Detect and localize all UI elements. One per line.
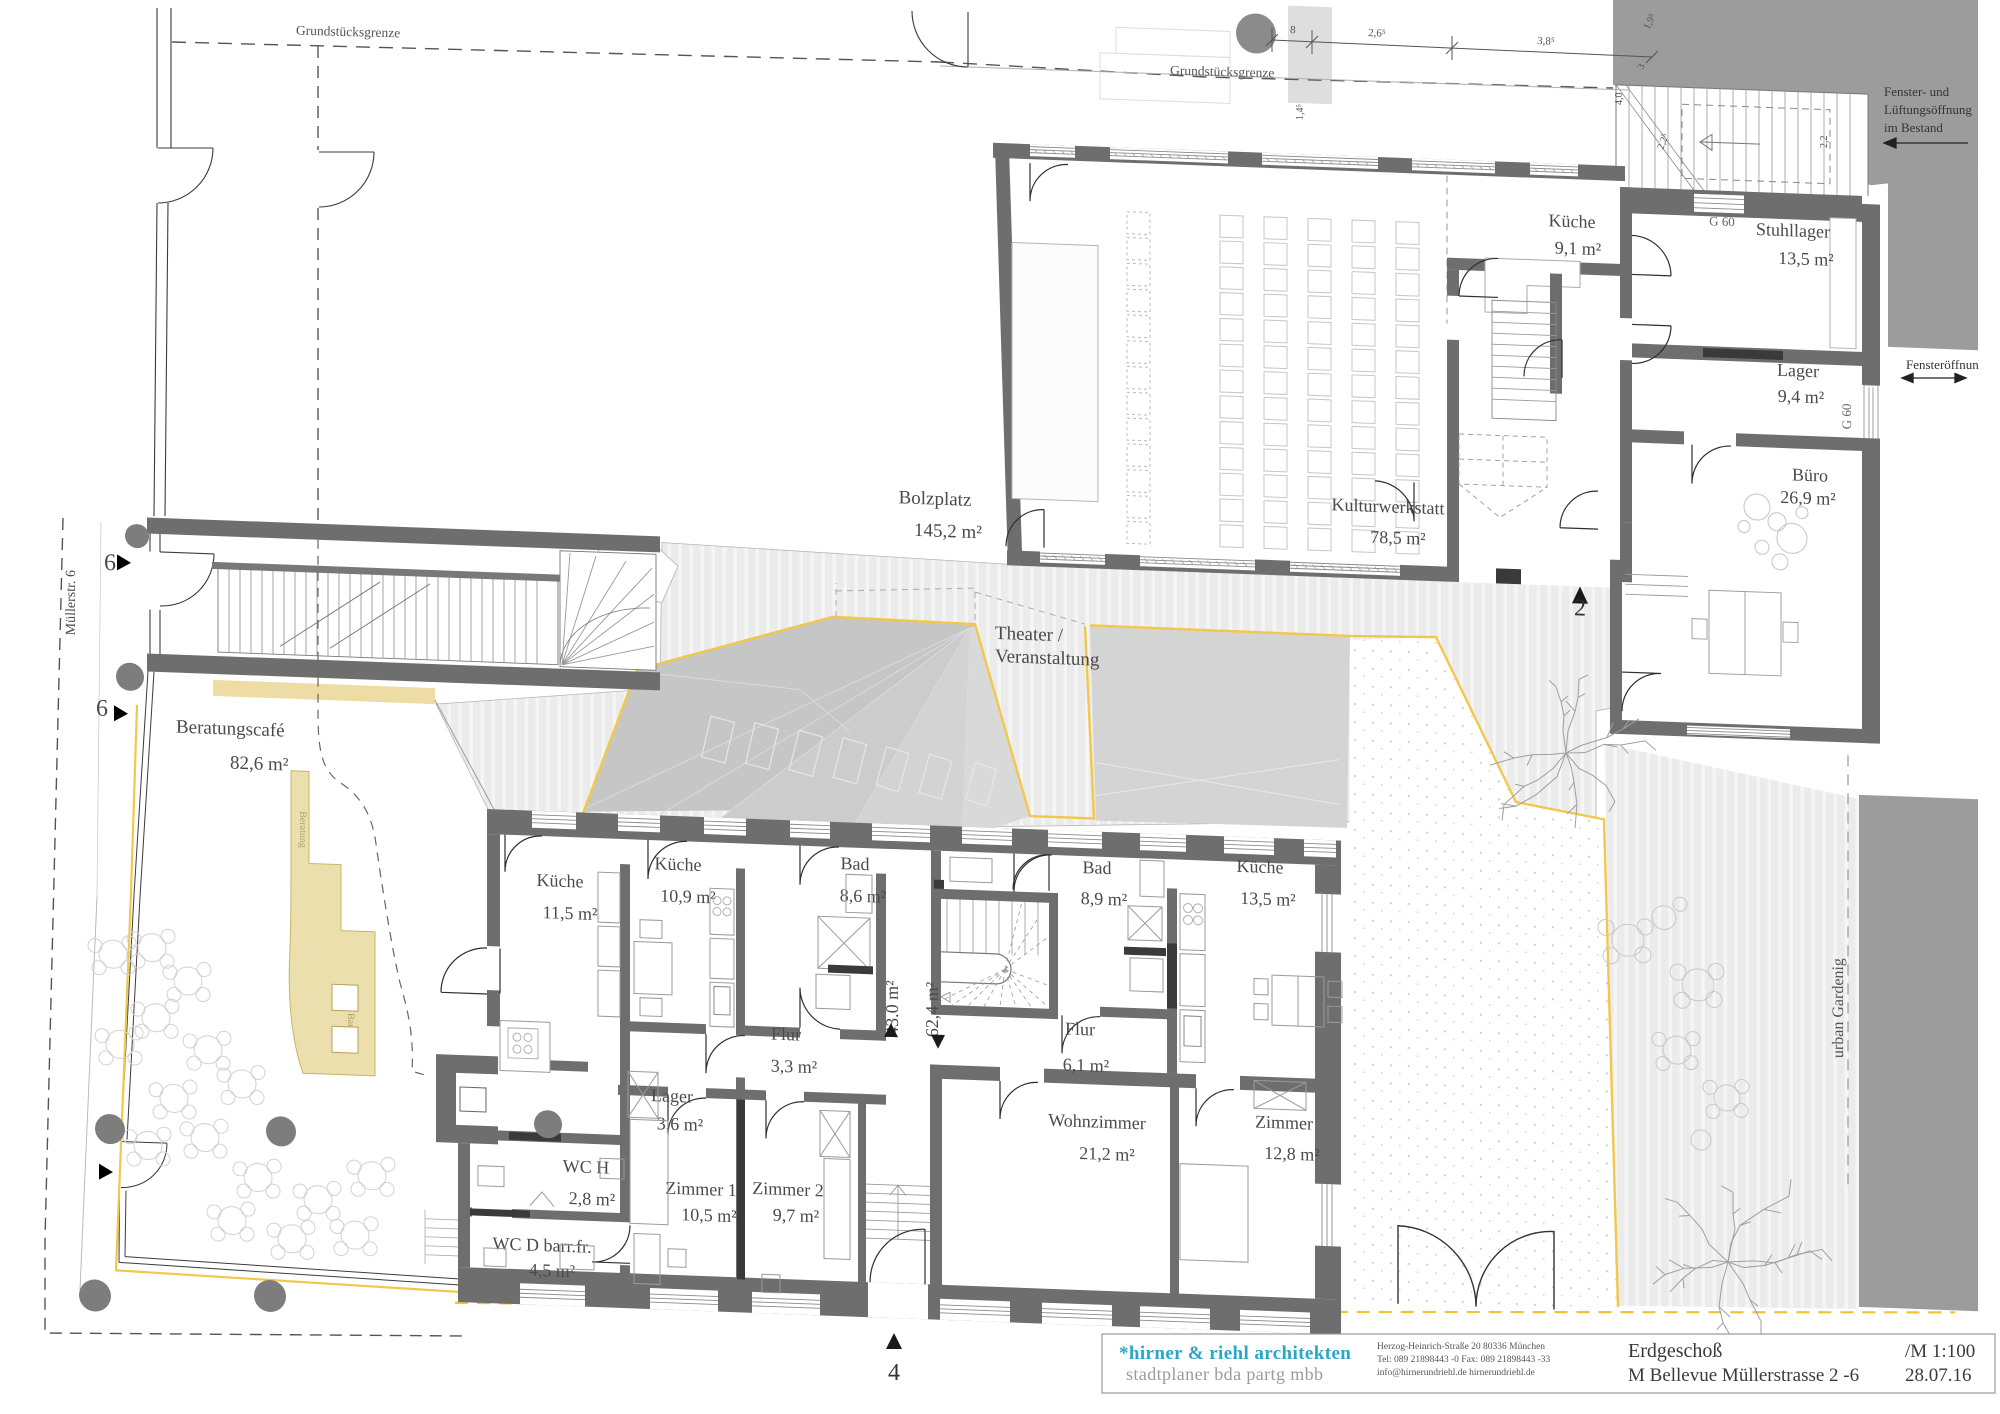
svg-text:Küche: Küche bbox=[1549, 210, 1596, 232]
svg-text:6: 6 bbox=[104, 550, 116, 576]
svg-text:6,1 m²: 6,1 m² bbox=[1063, 1054, 1109, 1076]
svg-text:Lüftungsöffnung: Lüftungsöffnung bbox=[1884, 102, 1972, 117]
svg-text:/M 1:100: /M 1:100 bbox=[1905, 1341, 1975, 1362]
svg-text:urban Gardenig: urban Gardenig bbox=[1830, 958, 1847, 1059]
svg-text:2,6⁵: 2,6⁵ bbox=[1368, 27, 1386, 40]
svg-text:Zimmer: Zimmer bbox=[1255, 1111, 1313, 1133]
svg-text:Küche: Küche bbox=[1237, 856, 1284, 878]
svg-text:9,7 m²: 9,7 m² bbox=[773, 1205, 819, 1227]
svg-text:9,4 m²: 9,4 m² bbox=[1778, 386, 1824, 408]
svg-text:Stuhllager: Stuhllager bbox=[1756, 219, 1830, 242]
svg-text:28.07.16: 28.07.16 bbox=[1905, 1365, 1972, 1386]
svg-text:82,6 m²: 82,6 m² bbox=[230, 753, 289, 776]
svg-text:4: 4 bbox=[888, 1360, 900, 1386]
svg-text:Tel: 089 21898443 -0 Fax: 0: Tel: 089 21898443 -0 Fax: 089 21898443 -… bbox=[1377, 1355, 1550, 1365]
svg-text:8,6 m²: 8,6 m² bbox=[840, 885, 886, 907]
svg-text:12,8 m²: 12,8 m² bbox=[1264, 1143, 1319, 1165]
svg-text:im Bestand: im Bestand bbox=[1884, 120, 1943, 135]
svg-text:11,5 m²: 11,5 m² bbox=[543, 902, 598, 924]
svg-text:Wohnzimmer: Wohnzimmer bbox=[1048, 1110, 1145, 1134]
svg-text:Lager: Lager bbox=[651, 1085, 693, 1107]
svg-text:Bad: Bad bbox=[841, 853, 870, 874]
svg-text:4,5 m²: 4,5 m² bbox=[529, 1260, 575, 1282]
svg-text:6: 6 bbox=[96, 696, 108, 722]
svg-text:Beratungscafé: Beratungscafé bbox=[176, 717, 285, 742]
svg-text:Fensteröffnun: Fensteröffnun bbox=[1906, 357, 1979, 372]
svg-text:Flur: Flur bbox=[771, 1024, 801, 1045]
svg-text:Theater /: Theater / bbox=[995, 623, 1064, 647]
svg-text:62,4 m²: 62,4 m² bbox=[922, 981, 942, 1037]
svg-text:info@hirnerundriehl.de h: info@hirnerundriehl.de hirnerundriehl.de bbox=[1377, 1367, 1535, 1378]
svg-text:9,1 m²: 9,1 m² bbox=[1555, 238, 1601, 260]
svg-text:13,5 m²: 13,5 m² bbox=[1240, 888, 1295, 910]
svg-text:2,8 m²: 2,8 m² bbox=[569, 1188, 615, 1210]
svg-text:3,6 m²: 3,6 m² bbox=[657, 1113, 703, 1135]
svg-text:Grundstücksgrenze: Grundstücksgrenze bbox=[1170, 63, 1275, 81]
svg-text:13,5 m²: 13,5 m² bbox=[1778, 248, 1833, 270]
svg-text:2,2: 2,2 bbox=[1819, 136, 1830, 149]
svg-text:Fenster- und: Fenster- und bbox=[1884, 84, 1950, 99]
svg-text:WC H: WC H bbox=[563, 1156, 609, 1178]
svg-text:Erdgeschoß: Erdgeschoß bbox=[1628, 1340, 1722, 1362]
svg-text:*hirner & riehl architekten: *hirner & riehl architekten bbox=[1119, 1343, 1351, 1364]
svg-text:Zimmer 2: Zimmer 2 bbox=[752, 1178, 823, 1201]
svg-text:G 60: G 60 bbox=[1839, 403, 1854, 429]
svg-text:M Bellevue Müllerstrasse 2 -6: M Bellevue Müllerstrasse 2 -6 bbox=[1628, 1365, 1859, 1386]
svg-text:21,2 m²: 21,2 m² bbox=[1079, 1143, 1134, 1165]
svg-text:Büro: Büro bbox=[1792, 464, 1828, 485]
svg-text:145,2 m²: 145,2 m² bbox=[914, 520, 982, 544]
svg-text:Müllerstr. 6: Müllerstr. 6 bbox=[64, 570, 79, 636]
svg-text:stadtplaner bda partg mbb: stadtplaner bda partg mbb bbox=[1126, 1364, 1323, 1384]
svg-text:Küche: Küche bbox=[537, 870, 584, 892]
svg-text:8: 8 bbox=[1290, 24, 1297, 36]
svg-text:2: 2 bbox=[1574, 595, 1586, 621]
svg-text:3,3 m²: 3,3 m² bbox=[771, 1056, 817, 1078]
svg-text:Küche: Küche bbox=[655, 853, 702, 875]
svg-text:26,9 m²: 26,9 m² bbox=[1780, 487, 1835, 509]
svg-text:Bar: Bar bbox=[345, 1013, 356, 1029]
svg-text:G 60: G 60 bbox=[1709, 213, 1735, 229]
svg-text:10,9 m²: 10,9 m² bbox=[660, 885, 715, 907]
svg-text:Kulturwerkstatt: Kulturwerkstatt bbox=[1332, 494, 1445, 518]
svg-text:Bolzplatz: Bolzplatz bbox=[899, 487, 972, 511]
svg-text:Herzog-Heinrich-Straße 20 80: Herzog-Heinrich-Straße 20 80336 München bbox=[1377, 1341, 1545, 1352]
svg-text:Grundstücksgrenze: Grundstücksgrenze bbox=[296, 23, 401, 41]
svg-text:Bad: Bad bbox=[1083, 857, 1112, 878]
svg-text:Veranstaltung: Veranstaltung bbox=[995, 646, 1100, 671]
svg-text:Lager: Lager bbox=[1777, 360, 1819, 382]
svg-text:78,5 m²: 78,5 m² bbox=[1370, 527, 1425, 549]
svg-text:8,9 m²: 8,9 m² bbox=[1081, 888, 1127, 910]
svg-text:4,0: 4,0 bbox=[1614, 93, 1625, 106]
svg-text:3,8⁵: 3,8⁵ bbox=[1537, 35, 1555, 48]
svg-text:Zimmer 1: Zimmer 1 bbox=[665, 1178, 736, 1201]
svg-text:10,5 m²: 10,5 m² bbox=[681, 1204, 736, 1226]
svg-text:1,4⁵: 1,4⁵ bbox=[1295, 104, 1306, 120]
svg-text:Beratung: Beratung bbox=[297, 811, 308, 848]
